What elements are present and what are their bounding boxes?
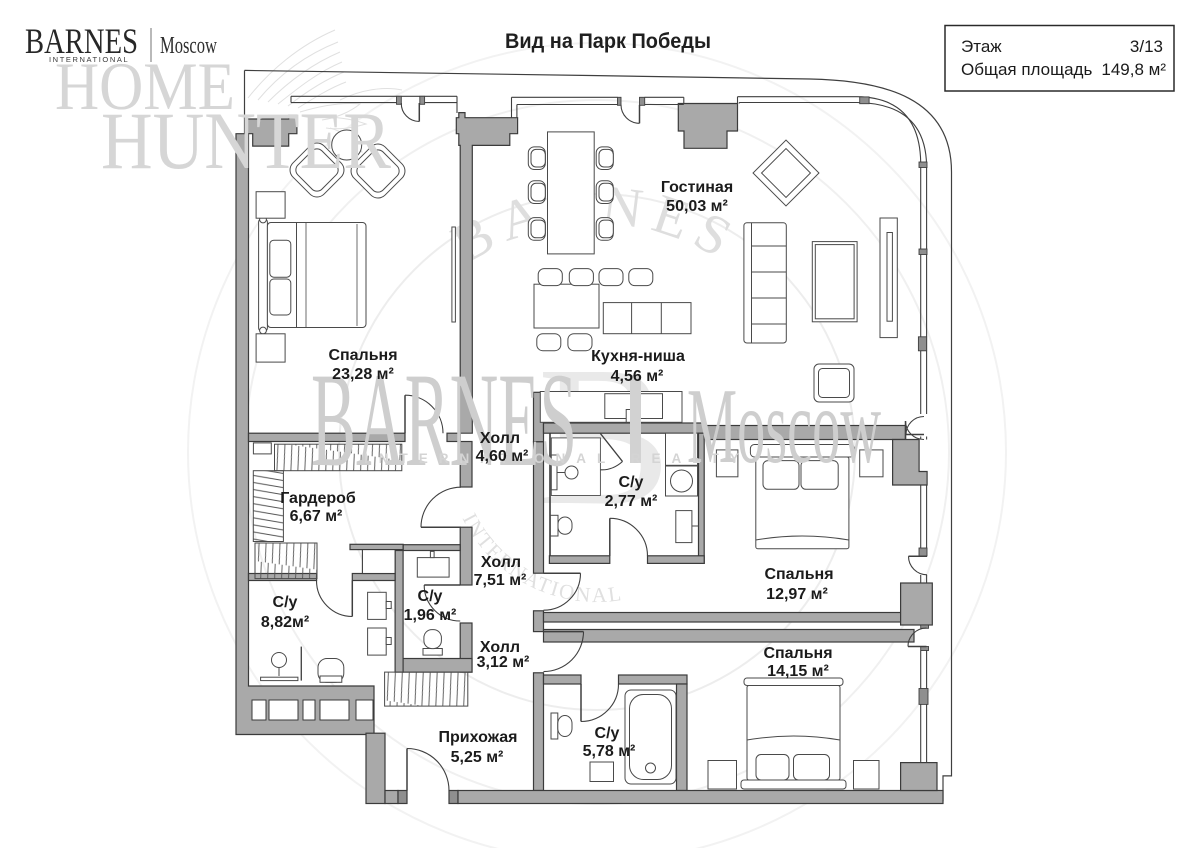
svg-text:Холл: Холл	[481, 554, 521, 571]
svg-text:С/у: С/у	[595, 725, 620, 742]
svg-text:12,97 м²: 12,97 м²	[766, 586, 828, 603]
svg-text:Кухня-ниша: Кухня-ниша	[591, 348, 685, 365]
svg-text:Спальня: Спальня	[763, 645, 832, 662]
svg-text:Moscow: Moscow	[687, 367, 881, 486]
svg-text:Спальня: Спальня	[764, 566, 833, 583]
svg-text:6,67 м²: 6,67 м²	[290, 508, 343, 525]
svg-text:С/у: С/у	[418, 588, 443, 605]
svg-text:С/у: С/у	[273, 594, 298, 611]
svg-text:2,77 м²: 2,77 м²	[605, 493, 658, 510]
svg-text:3,12 м²: 3,12 м²	[477, 654, 530, 671]
svg-text:5,25 м²: 5,25 м²	[451, 749, 504, 766]
svg-text:3/13: 3/13	[1130, 37, 1163, 56]
svg-text:INTERNATIONAL REALTY: INTERNATIONAL REALTY	[364, 451, 750, 466]
svg-text:1,96 м²: 1,96 м²	[404, 607, 457, 624]
svg-text:Спальня: Спальня	[328, 347, 397, 364]
svg-text:Гардероб: Гардероб	[280, 490, 356, 507]
svg-text:149,8 м²: 149,8 м²	[1101, 60, 1166, 79]
svg-text:7,51 м²: 7,51 м²	[474, 572, 527, 589]
svg-text:4,56 м²: 4,56 м²	[611, 368, 664, 385]
svg-text:Вид на Парк Победы: Вид на Парк Победы	[505, 29, 711, 53]
svg-text:14,15 м²: 14,15 м²	[767, 663, 829, 680]
svg-text:50,03 м²: 50,03 м²	[666, 198, 728, 215]
svg-text:4,60 м²: 4,60 м²	[476, 448, 529, 465]
svg-text:Общая площадь: Общая площадь	[961, 60, 1092, 79]
svg-text:Холл: Холл	[480, 430, 520, 447]
svg-text:Этаж: Этаж	[961, 37, 1002, 56]
svg-text:HUNTER: HUNTER	[101, 95, 391, 186]
svg-text:INTERNATIONAL: INTERNATIONAL	[49, 55, 129, 64]
svg-text:Прихожая: Прихожая	[439, 729, 518, 746]
svg-text:5,78 м²: 5,78 м²	[583, 743, 636, 760]
svg-text:8,82м²: 8,82м²	[261, 614, 309, 631]
svg-text:Гостиная: Гостиная	[661, 179, 733, 196]
svg-text:С/у: С/у	[619, 474, 644, 491]
svg-text:23,28 м²: 23,28 м²	[332, 366, 394, 383]
svg-text:Moscow: Moscow	[160, 33, 217, 59]
